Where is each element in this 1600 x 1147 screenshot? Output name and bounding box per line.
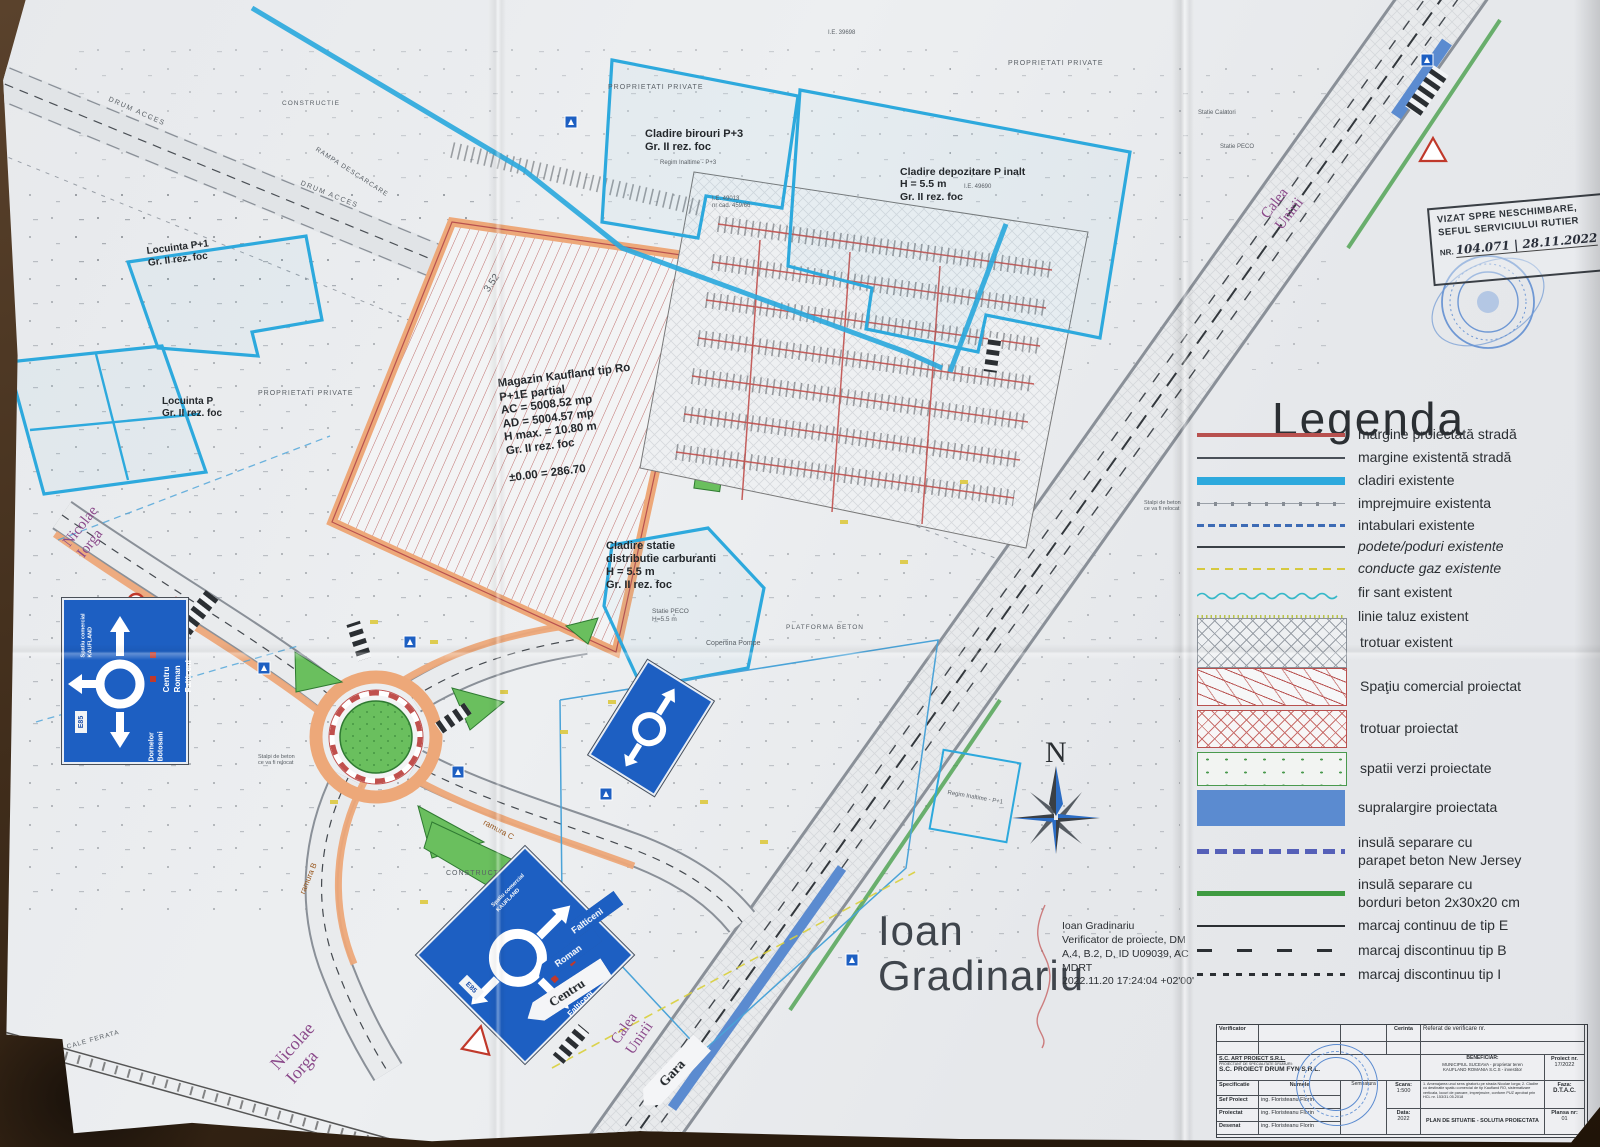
svg-text:N: N bbox=[1045, 736, 1067, 769]
label-stalpi-2: Stalpi de beton ce va fi relocat bbox=[258, 754, 295, 767]
tb-beneficiar-2: KAUFLAND ROMANIA S.C.S - investitor bbox=[1423, 1067, 1542, 1072]
label-regim-p3: Regim Inaltime - P+3 bbox=[660, 160, 716, 167]
legend-item-label: trotuar proiectat bbox=[1360, 720, 1458, 738]
label-statie-peco-right: Statie PECO bbox=[1220, 144, 1254, 151]
legend-swatch bbox=[1197, 502, 1345, 506]
title-block: Verificator Cerinta Referat de verificar… bbox=[1216, 1024, 1588, 1138]
legend-item-label: spatii verzi proiectate bbox=[1360, 760, 1492, 778]
signer-ids: A.4, B.2, D, ID U09039, AC bbox=[1062, 948, 1262, 962]
company-seal-icon bbox=[1296, 1044, 1378, 1126]
legend-swatch bbox=[1197, 618, 1347, 668]
label-proprietati-2: PROPRIETATI PRIVATE bbox=[608, 84, 704, 92]
label-ie-49013: I.E. 49013 nr cad. 459/66 bbox=[712, 196, 750, 210]
signer-name: Ioan Gradinariu bbox=[1062, 920, 1262, 934]
legend-row: insulă separare cu parapet beton New Jer… bbox=[1197, 834, 1595, 869]
tb-empty bbox=[1341, 1025, 1387, 1042]
legend-swatch bbox=[1197, 849, 1345, 854]
tb-desenat: Desenat bbox=[1217, 1122, 1259, 1135]
legend-swatch bbox=[1197, 588, 1345, 598]
sign-destinations: Centru Roman Falticeni bbox=[162, 660, 194, 692]
tb-cerinta: Cerinta bbox=[1387, 1025, 1421, 1042]
signer-role: Verificator de proiecte, DM bbox=[1062, 934, 1262, 948]
sign-kaufland: Spatiu comercial KAUFLAND bbox=[81, 613, 96, 657]
legend-item-label: Spaţiu comercial proiectat bbox=[1360, 678, 1521, 696]
tb-proiect: Proiect nr. 17/2022 bbox=[1545, 1055, 1585, 1081]
route-badge bbox=[150, 652, 156, 658]
legend-row: conducte gaz existente bbox=[1197, 560, 1595, 578]
label-statie-calatori: Statie Calatori bbox=[1198, 110, 1236, 117]
road-service-stamp: VIZAT SPRE NESCHIMBARE, SEFUL SERVICIULU… bbox=[1427, 192, 1600, 286]
tb-proiectat: Proiectat bbox=[1217, 1109, 1259, 1122]
legend-item-label: podete/poduri existente bbox=[1358, 538, 1504, 556]
legend-swatch bbox=[1197, 752, 1347, 786]
legend-item-label: trotuar existent bbox=[1360, 634, 1453, 652]
label-cladire-depozitare: Cladire depozitare P inalt H = 5.5 m Gr.… bbox=[900, 166, 1025, 203]
roundabout-guide-sign-1: Centru Roman Falticeni Dornelor Botosani… bbox=[62, 598, 188, 764]
tb-empty bbox=[1421, 1042, 1585, 1055]
tb-data-v: 2022 bbox=[1389, 1116, 1418, 1122]
legend-swatch bbox=[1197, 710, 1347, 748]
tb-sef: Sef Proiect bbox=[1217, 1096, 1259, 1109]
tb-specificatie: Specificatie bbox=[1217, 1081, 1259, 1096]
label-constructie-1: CONSTRUCTIE bbox=[282, 100, 340, 108]
route-badge bbox=[150, 676, 156, 682]
tb-referat: Referat de verificare nr. bbox=[1421, 1025, 1585, 1042]
seal-dashed-ring bbox=[1303, 1051, 1369, 1117]
legend-swatch bbox=[1197, 790, 1345, 826]
legend-swatch bbox=[1197, 568, 1345, 570]
legend-row: trotuar proiectat bbox=[1197, 710, 1595, 748]
label-statie-carburanti: Cladire statie distributie carburanti H … bbox=[606, 540, 716, 592]
tb-descriere: 1. Amenajarea unui sens giratoriu pe str… bbox=[1421, 1081, 1545, 1109]
legend-item-label: marcaj continuu de tip E bbox=[1358, 917, 1508, 935]
legend-item-label: insulă separare cu borduri beton 2x30x20… bbox=[1358, 876, 1520, 911]
legend-row: spatii verzi proiectate bbox=[1197, 752, 1595, 786]
tb-plan-title: PLAN DE SITUATIE - SOLUTIA PROIECTATA bbox=[1421, 1109, 1545, 1135]
legend-row: margine existentă stradă bbox=[1197, 449, 1595, 467]
tb-faza: Faza: D.T.A.C. bbox=[1545, 1081, 1585, 1109]
legend-item-label: conducte gaz existente bbox=[1358, 560, 1501, 578]
legend-row: trotuar existent bbox=[1197, 618, 1595, 668]
signer-org: MDRT bbox=[1062, 962, 1262, 976]
legend-swatch bbox=[1197, 457, 1345, 459]
legend-row: imprejmuire existenta bbox=[1197, 495, 1595, 513]
legend-swatch bbox=[1197, 524, 1345, 527]
tb-beneficiar: BENEFICIAR: MUNICIPIUL SUCEAVA - proprie… bbox=[1421, 1055, 1545, 1081]
tb-faza-v: D.T.A.C. bbox=[1547, 1088, 1582, 1095]
tb-scara: Scara: 1:500 bbox=[1387, 1081, 1421, 1109]
legend-swatch bbox=[1197, 433, 1345, 437]
tb-scara-v: 1:500 bbox=[1389, 1088, 1418, 1094]
legend-swatch bbox=[1197, 891, 1345, 896]
sign-destinations-2: Dornelor Botosani bbox=[148, 732, 167, 762]
label-stalpi-1: Stalpi de beton ce va fi relocat bbox=[1144, 500, 1181, 513]
legend-item-label: supralargire proiectata bbox=[1358, 799, 1497, 817]
legend-swatch bbox=[1197, 668, 1347, 706]
legend-row: supralargire proiectata bbox=[1197, 790, 1595, 826]
label-platforma-beton: PLATFORMA BETON bbox=[786, 624, 864, 632]
legend-swatch bbox=[1197, 546, 1345, 548]
legend-row: cladiri existente bbox=[1197, 472, 1595, 490]
label-cladire-birouri: Cladire birouri P+3 Gr. II rez. foc bbox=[645, 128, 743, 154]
label-proprietati-3: PROPRIETATI PRIVATE bbox=[258, 390, 354, 398]
legend-row: podete/poduri existente bbox=[1197, 538, 1595, 556]
tb-empty bbox=[1217, 1042, 1259, 1055]
label-statie-peco: Statie PECO H=5.5 m bbox=[652, 608, 689, 623]
signature-name-large: Ioan Gradinariu bbox=[878, 908, 1084, 999]
digital-signature-block: Ioan Gradinariu Verificator de proiecte,… bbox=[1062, 920, 1262, 989]
paper-sheet: N Cladire birouri P+3 Gr. II rez. foc Re… bbox=[0, 0, 1600, 1147]
scanned-site-plan: N Cladire birouri P+3 Gr. II rez. foc Re… bbox=[0, 0, 1600, 1147]
label-kaufland: Magazin Kaufland tip Ro P+1E partial AC … bbox=[497, 362, 643, 486]
legend-row: fir sant existent bbox=[1197, 584, 1595, 602]
tb-plansa-v: 01 bbox=[1547, 1116, 1582, 1122]
legend-row: intabulari existente bbox=[1197, 517, 1595, 535]
label-copertina: Copertina Pompe bbox=[706, 640, 760, 648]
tb-empty bbox=[1387, 1042, 1421, 1055]
tb-data: Data: 2022 bbox=[1387, 1109, 1421, 1135]
legend-item-label: imprejmuire existenta bbox=[1358, 495, 1491, 513]
legend-item-label: intabulari existente bbox=[1358, 517, 1475, 535]
label-ie-39698: I.E. 39698 bbox=[828, 30, 855, 37]
legend-row: insulă separare cu borduri beton 2x30x20… bbox=[1197, 876, 1595, 911]
legend-swatch bbox=[1197, 477, 1345, 485]
legend-item-label: cladiri existente bbox=[1358, 472, 1455, 490]
stamp-nr-label: NR. bbox=[1439, 247, 1454, 257]
wavy-line-icon bbox=[1197, 591, 1345, 601]
warning-triangle-icon bbox=[1420, 138, 1446, 161]
label-ie-49690: I.E. 49690 bbox=[964, 184, 991, 191]
legend-row: Spaţiu comercial proiectat bbox=[1197, 668, 1595, 706]
legend-item-label: margine proiectată stradă bbox=[1358, 426, 1517, 444]
legend-item-label: marcaj discontinuu tip B bbox=[1358, 942, 1507, 960]
signature-date: 2022.11.20 17:24:04 +02'00' bbox=[1062, 975, 1262, 989]
roundabout bbox=[316, 677, 436, 797]
tb-verificator: Verificator bbox=[1217, 1025, 1259, 1042]
label-proprietati-1: PROPRIETATI PRIVATE bbox=[1008, 60, 1104, 68]
legend-item-label: margine existentă stradă bbox=[1358, 449, 1511, 467]
legend-item-label: insulă separare cu parapet beton New Jer… bbox=[1358, 834, 1521, 869]
tb-proiect-nr: 17/2022 bbox=[1547, 1062, 1582, 1068]
legend-item-label: fir sant existent bbox=[1358, 584, 1452, 602]
legend-item-label: marcaj discontinuu tip I bbox=[1358, 966, 1501, 984]
tb-empty bbox=[1259, 1025, 1341, 1042]
legend-row: margine proiectată stradă bbox=[1197, 426, 1595, 444]
route-e85-plate: E85 bbox=[75, 711, 87, 733]
tb-plansa: Plansa nr: 01 bbox=[1545, 1109, 1585, 1135]
label-locuinta-p: Locuinta P Gr. II rez. foc bbox=[162, 396, 222, 420]
